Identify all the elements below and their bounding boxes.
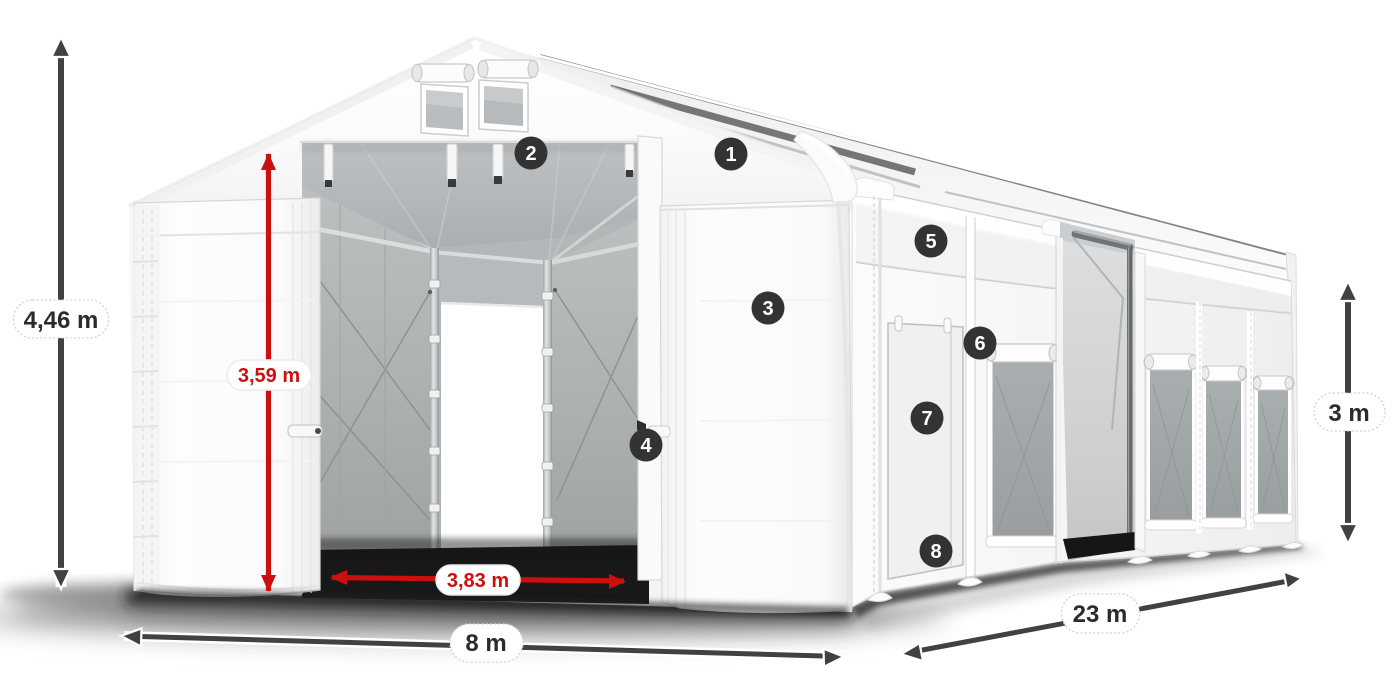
svg-text:8 m: 8 m [465, 630, 506, 657]
svg-text:3,83 m: 3,83 m [447, 570, 509, 592]
svg-text:3,59 m: 3,59 m [238, 365, 300, 387]
svg-text:8: 8 [930, 541, 941, 563]
svg-text:3: 3 [762, 298, 773, 320]
svg-text:1: 1 [725, 144, 736, 166]
svg-text:4: 4 [640, 435, 652, 457]
svg-text:4,46 m: 4,46 m [24, 307, 99, 334]
svg-text:23 m: 23 m [1073, 601, 1128, 628]
svg-text:2: 2 [525, 143, 536, 165]
svg-text:3 m: 3 m [1328, 400, 1369, 427]
svg-text:7: 7 [921, 408, 932, 430]
svg-text:6: 6 [974, 333, 985, 355]
svg-text:5: 5 [925, 231, 936, 253]
